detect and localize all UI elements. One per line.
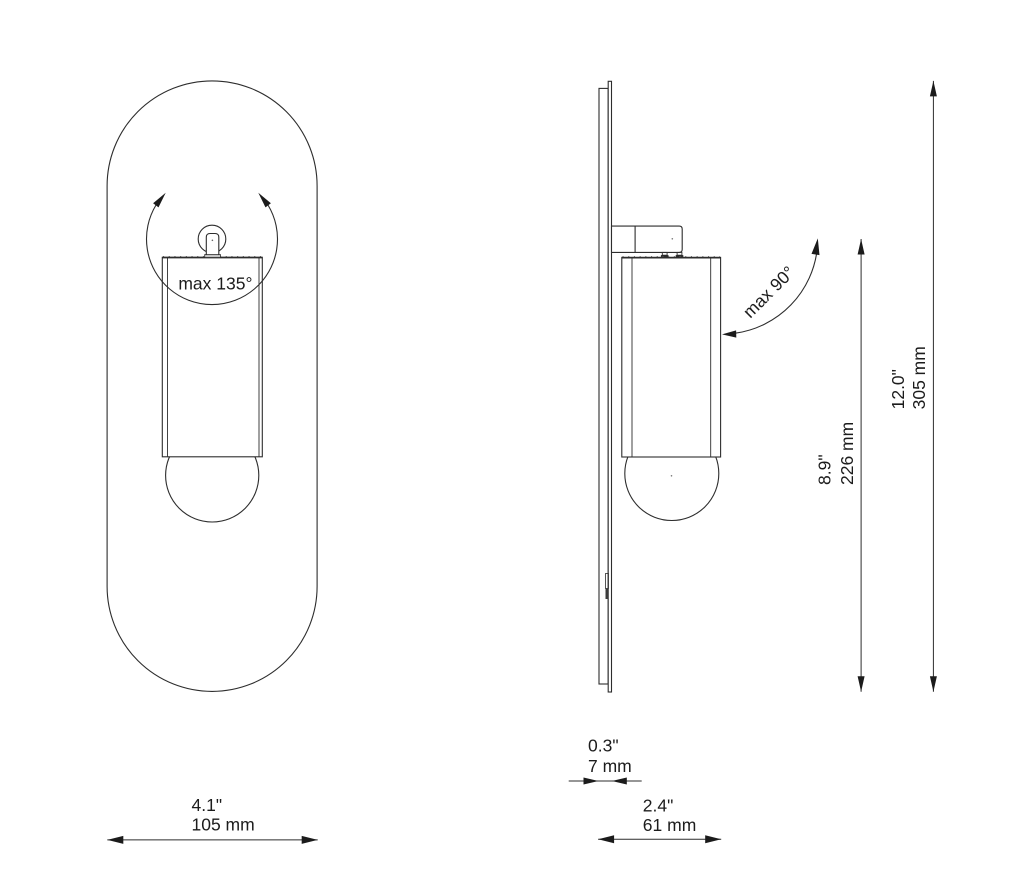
svg-text:8.9": 8.9" <box>814 454 834 485</box>
svg-text:12.0": 12.0" <box>888 369 908 409</box>
svg-text:7 mm: 7 mm <box>588 756 632 776</box>
svg-text:0.3": 0.3" <box>588 736 619 756</box>
svg-text:max 135°: max 135° <box>178 273 252 293</box>
svg-text:105 mm: 105 mm <box>192 815 255 835</box>
svg-text:305 mm: 305 mm <box>909 346 929 409</box>
svg-text:2.4": 2.4" <box>643 796 674 816</box>
svg-text:max 90°: max 90° <box>739 262 799 322</box>
svg-text:61 mm: 61 mm <box>643 815 696 835</box>
svg-text:4.1": 4.1" <box>192 795 223 815</box>
svg-text:226 mm: 226 mm <box>837 422 857 485</box>
